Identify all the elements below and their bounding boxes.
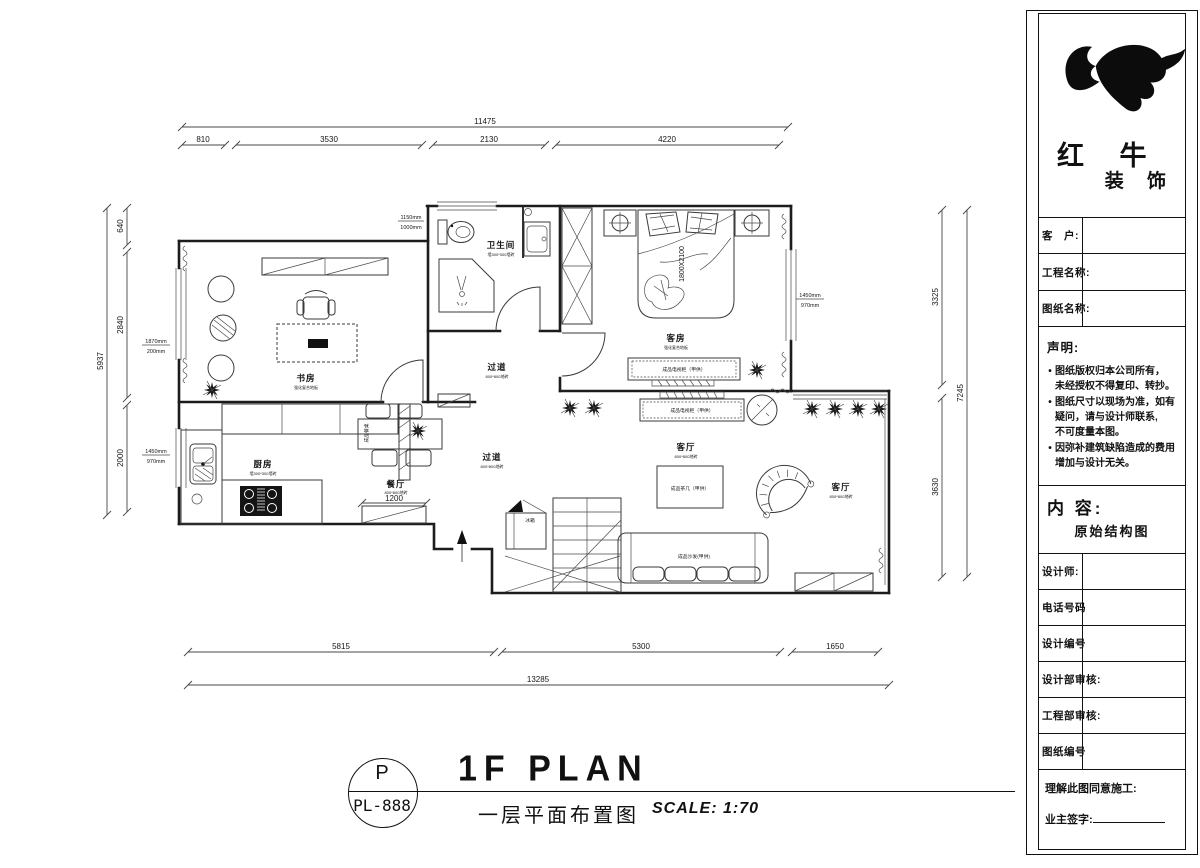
field-project: 工程名称: [1038,253,1186,291]
windows [176,202,887,585]
bull-logo-icon [1041,22,1187,132]
room-living-right-note: 800*800地砖 [830,493,853,499]
brand-logo-box: 红 牛 装 饰 [1038,13,1186,218]
statement-item: • 图纸尺寸以现场为准，如有 疑问，请与设计师联系, 不可度量本图。 [1045,395,1181,440]
statement-box: 声明: • 图纸版权归本公司所有， 未经授权不得复印、转抄。 • 图纸尺寸以现场… [1038,326,1186,486]
dim-top-1: 3530 [320,135,338,144]
row-sheet-no: 图纸编号 [1038,733,1186,770]
room-guest: 1800X2100 成品电视柜（甲供） 客房 强化复合地板 [604,210,786,386]
plan-title: 1F PLAN [458,749,649,790]
lounge-chair [744,453,818,523]
stamp-letter: P [348,762,416,785]
svg-text:970mm: 970mm [147,459,166,465]
room-dining: 成品餐桌 餐厅 800*800地砖 1200 [358,394,470,523]
hall-lower-note: 800*800地砖 [481,463,504,469]
doors [381,287,605,402]
window-dim-left-lower: 1450mm 970mm [142,449,170,465]
statement-heading: 声明: [1047,337,1181,356]
room-guest-label: 客房 [665,333,685,343]
dim-bot-1: 5300 [632,642,650,651]
dim-bot-0: 5815 [332,642,350,651]
window-dim-top: 1150mm 1000mm [398,215,424,231]
content-box: 内 容: 原始结构图 [1038,485,1186,554]
svg-text:1000mm: 1000mm [400,225,422,231]
dim-left-overall: 5937 [96,352,105,370]
dim-left-0: 640 [116,219,125,233]
room-bath-note: 墙300*300墙砖 [488,251,515,257]
approval-line: 理解此图同意施工: [1045,780,1185,796]
hall-upper-label: 过道 [487,362,506,372]
content-value: 原始结构图 [1039,521,1185,540]
dim-left-1: 2840 [116,316,125,334]
tv-cabinet-living-label: 成品电视柜（甲供） [670,407,713,414]
field-client-label: 客 户: [1039,218,1083,253]
hall-upper-note: 800*800地砖 [486,373,509,379]
tv-cabinet-guest-label: 成品电视柜（甲供） [662,366,705,373]
statement-item: • 图纸版权归本公司所有， 未经授权不得复印、转抄。 [1045,364,1181,394]
row-design-no: 设计编号 [1038,625,1186,662]
dim-top-overall: 11475 [474,117,496,126]
title-divider-line [349,791,1015,792]
bed-size-label: 1800X2100 [679,246,686,282]
field-sheet-label: 图纸名称: [1039,291,1083,326]
plan-subtitle: 一层平面布置图 [478,799,639,828]
row-designer: 设计师: [1038,553,1186,590]
dim-left-2: 2000 [116,449,125,467]
plan-scale: SCALE: 1:70 [652,800,759,818]
bullet-icon: • [1045,395,1055,440]
svg-text:1870mm: 1870mm [145,339,167,345]
field-project-label: 工程名称: [1039,254,1083,290]
room-living: 成品电视柜（甲供） 成品茶几（甲供） 成品沙发(甲供) 客厅 8 [561,389,888,591]
field-sheet: 图纸名称: [1038,290,1186,327]
dim-top-3: 4220 [658,135,676,144]
dim-cabinet-width: 1200 [385,494,403,503]
fridge: 冰箱 [506,500,546,549]
room-study-label: 书房 [296,373,315,383]
svg-text:1450mm: 1450mm [145,449,167,455]
dim-bot-2: 1650 [826,642,844,651]
dim-right-1: 3630 [931,478,940,496]
room-kitchen-label: 厨房 [253,459,272,469]
coffee-table-label: 成品茶几（甲供） [671,485,709,492]
field-project-value [1083,254,1185,290]
room-living-center-note: 800*800地砖 [675,453,698,459]
window-dim-right-bedroom: 1450mm 970mm [796,293,824,309]
dim-top-0: 810 [196,135,210,144]
sofa-label: 成品沙发(甲供) [678,553,710,560]
field-sheet-value [1083,291,1185,326]
room-living-center-label: 客厅 [675,442,695,452]
stairs [505,498,621,592]
svg-text:200mm: 200mm [147,349,166,355]
dining-table-label: 成品餐桌 [363,423,370,442]
room-dining-label: 餐厅 [385,479,405,489]
window-dim-left-upper: 1870mm 200mm [142,339,170,355]
drawing-sheet: 书房 强化复合地板 卫生间 墙300*300墙砖 1800 [0,0,1200,868]
dim-bottom-overall: 13285 [527,675,550,684]
dim-right-overall: 7245 [956,384,965,402]
fridge-label: 冰箱 [525,517,535,524]
svg-text:1450mm: 1450mm [799,293,821,299]
approval-box: 理解此图同意施工: 业主签字: [1038,769,1186,850]
row-engineering-review: 工程部审核: [1038,697,1186,734]
bullet-icon: • [1045,364,1055,394]
row-phone: 电话号码 [1038,589,1186,626]
room-guest-note: 强化复合地板 [664,344,688,350]
owner-sign-label: 业主签字: [1045,814,1093,826]
brand-suffix: 装 饰 [1105,166,1175,193]
room-study-note: 强化复合地板 [294,384,318,390]
room-bath-label: 卫生间 [487,240,516,250]
room-kitchen-note: 墙300*300墙砖 [250,470,277,476]
field-client: 客 户: [1038,217,1186,254]
entry-arrow [457,530,467,562]
wardrobe [562,208,592,324]
dim-top-2: 2130 [480,135,498,144]
field-client-value [1083,218,1185,253]
hallways: 过道 800*800地砖 过道 800*800地砖 [481,362,509,469]
content-heading: 内 容: [1047,494,1185,519]
row-design-review: 设计部审核: [1038,661,1186,698]
statement-item: • 因弥补建筑缺陷造成的费用 增加与设计无关。 [1045,441,1181,471]
floor-plan: 书房 强化复合地板 卫生间 墙300*300墙砖 1800 [0,0,1026,868]
room-bath: 卫生间 墙300*300墙砖 [438,209,550,313]
bullet-icon: • [1045,441,1055,471]
signature-line [1093,810,1165,823]
svg-text:1150mm: 1150mm [401,215,422,221]
walls [179,206,889,593]
dim-right-0: 3325 [931,288,940,306]
room-living-right-label: 客厅 [830,482,850,492]
room-study: 书房 强化复合地板 [183,246,388,399]
stamp-code: PL-888 [348,796,416,815]
svg-text:970mm: 970mm [801,303,820,309]
hall-lower-label: 过道 [482,452,501,462]
